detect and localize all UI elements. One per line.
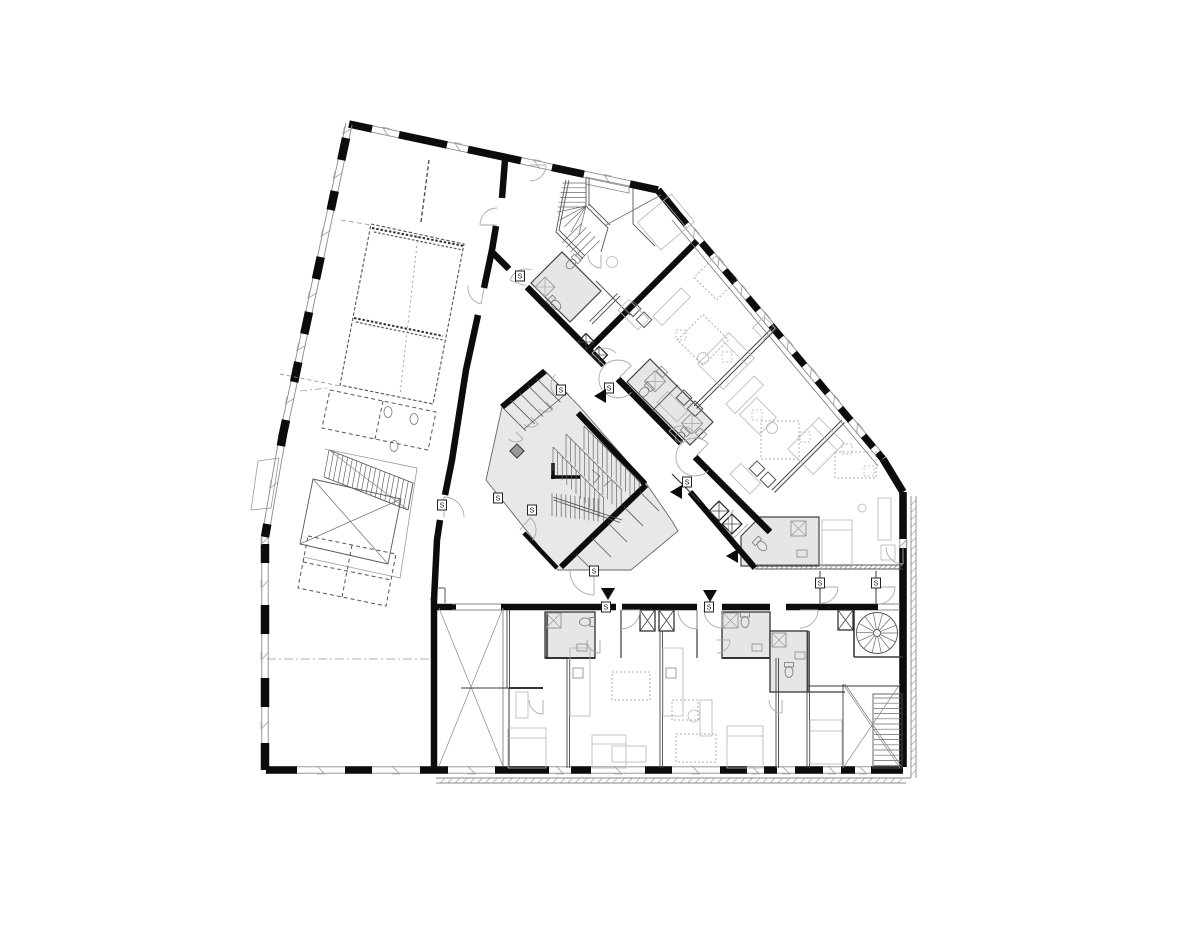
svg-text:S: S: [440, 503, 445, 510]
svg-text:S: S: [518, 274, 523, 281]
svg-text:S: S: [592, 569, 597, 576]
svg-text:S: S: [496, 496, 501, 503]
svg-text:S: S: [604, 605, 609, 612]
svg-text:S: S: [818, 581, 823, 588]
svg-text:S: S: [874, 581, 879, 588]
svg-text:S: S: [559, 388, 564, 395]
svg-text:S: S: [685, 480, 690, 487]
svg-text:S: S: [707, 605, 712, 612]
svg-text:S: S: [607, 386, 612, 393]
svg-text:S: S: [530, 508, 535, 515]
